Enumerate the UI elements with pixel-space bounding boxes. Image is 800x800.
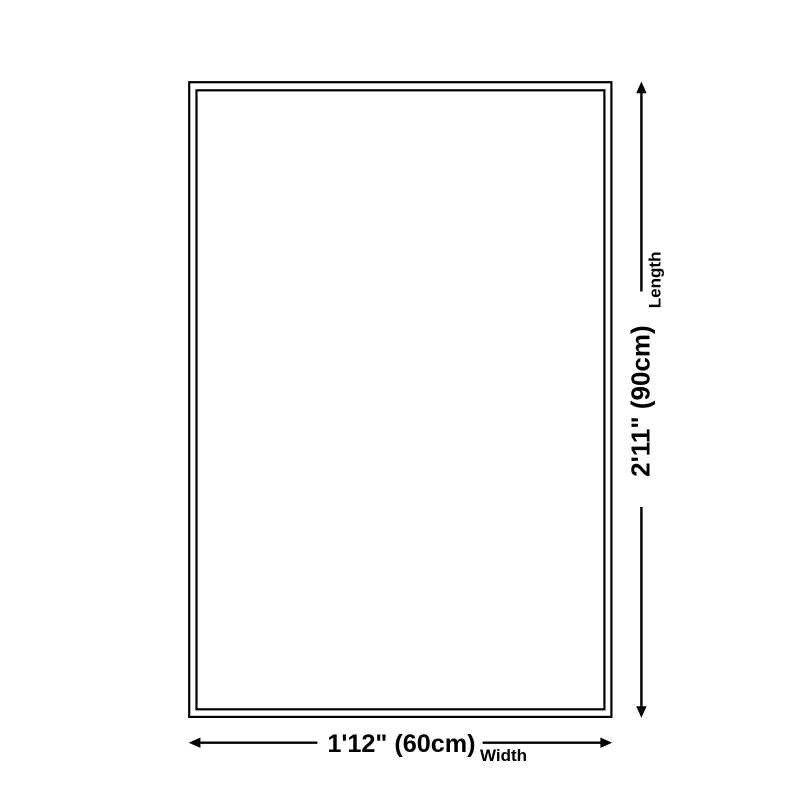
- svg-text:Width: Width: [480, 746, 527, 765]
- svg-text:1'12" (60cm): 1'12" (60cm): [327, 730, 475, 758]
- svg-text:2'11" (90cm): 2'11" (90cm): [626, 325, 656, 477]
- svg-text:Length: Length: [645, 252, 664, 309]
